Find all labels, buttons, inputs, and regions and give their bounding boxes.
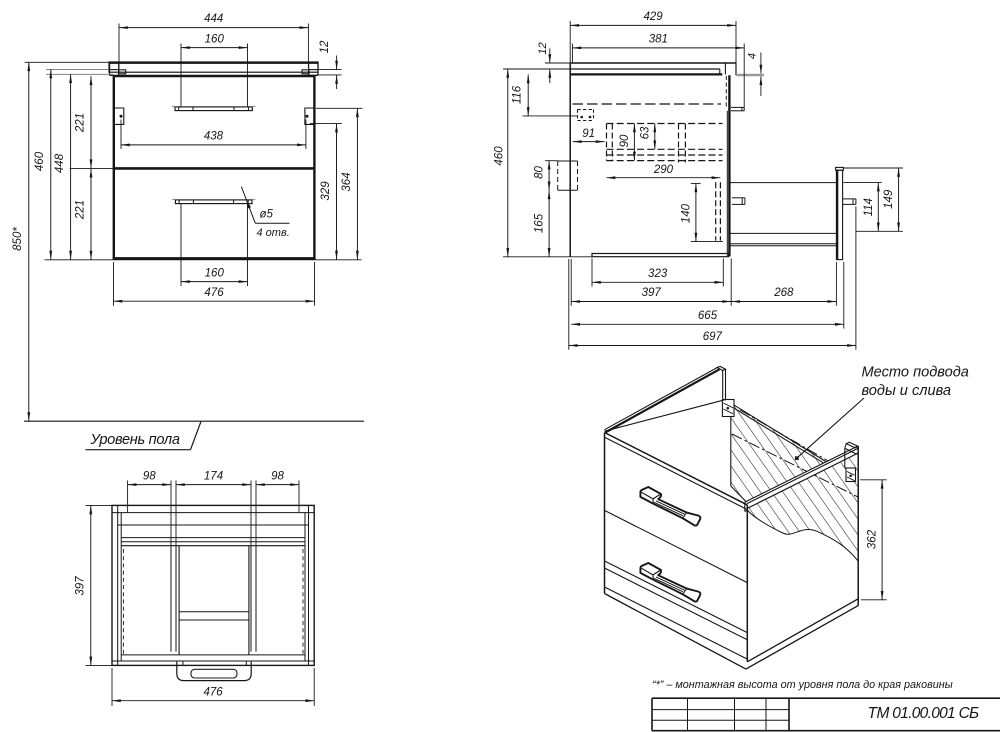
svg-text:221: 221 [75,113,87,133]
svg-text:91: 91 [582,128,595,140]
svg-text:268: 268 [773,287,794,299]
svg-text:329: 329 [320,181,332,201]
svg-text:90: 90 [619,134,631,147]
svg-text:323: 323 [648,268,668,280]
svg-text:290: 290 [653,164,674,176]
svg-text:438: 438 [204,131,224,143]
svg-text:149: 149 [883,189,895,209]
svg-text:160: 160 [205,267,225,279]
svg-text:80: 80 [534,166,546,179]
svg-text:63: 63 [639,126,651,139]
svg-text:476: 476 [204,287,224,299]
svg-text:“*” – монтажная высота от уров: “*” – монтажная высота от уровня пола до… [652,679,953,691]
svg-text:ø5: ø5 [260,209,274,221]
svg-text:12: 12 [537,42,549,54]
svg-text:221: 221 [75,200,87,220]
svg-text:воды и слива: воды и слива [862,383,952,399]
svg-text:174: 174 [204,470,223,482]
svg-text:697: 697 [703,331,723,343]
svg-text:116: 116 [512,85,524,104]
svg-text:444: 444 [204,13,223,25]
svg-text:Уровень пола: Уровень пола [90,432,180,448]
svg-text:160: 160 [205,33,225,45]
svg-text:364: 364 [341,172,353,191]
svg-text:4: 4 [746,53,758,59]
svg-text:362: 362 [867,529,879,549]
svg-text:381: 381 [649,34,668,46]
svg-text:448: 448 [54,153,66,173]
svg-text:98: 98 [143,470,156,482]
svg-text:476: 476 [204,686,224,698]
svg-text:114: 114 [863,198,875,216]
svg-text:98: 98 [271,470,284,482]
svg-text:665: 665 [698,310,718,322]
svg-text:140: 140 [680,203,692,223]
svg-text:460: 460 [494,146,506,166]
svg-text:429: 429 [644,11,664,23]
svg-text:165: 165 [533,213,545,233]
svg-text:460: 460 [34,151,46,171]
svg-text:4 отв.: 4 отв. [257,227,290,239]
svg-text:397: 397 [74,576,86,596]
svg-text:12: 12 [319,40,331,53]
svg-text:397: 397 [642,287,662,299]
svg-text:Место подвода: Место подвода [862,365,969,381]
svg-text:ТМ 01.00.001 СБ: ТМ 01.00.001 СБ [868,705,980,722]
svg-text:850*: 850* [12,227,24,251]
